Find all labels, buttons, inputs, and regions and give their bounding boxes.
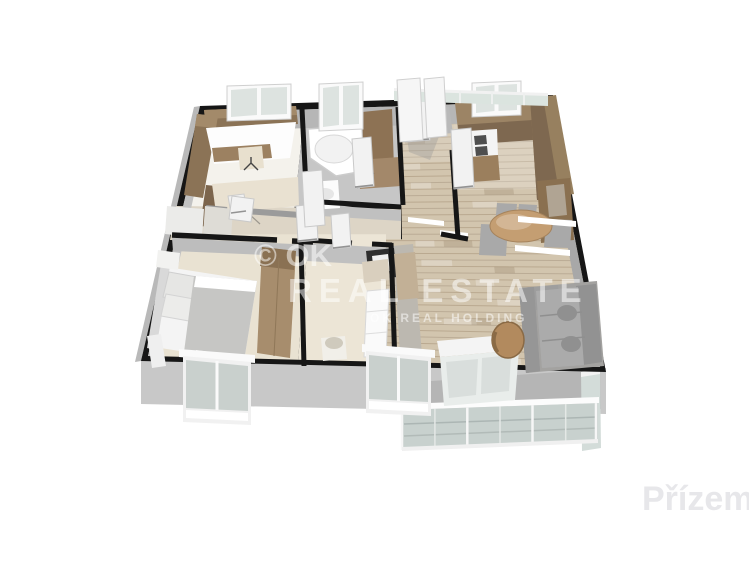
svg-text:© OK: © OK — [254, 238, 333, 273]
svg-text:Přízemí: Přízemí — [642, 480, 749, 518]
svg-text:OK REAL HOLDING: OK REAL HOLDING — [370, 311, 527, 325]
svg-text:REAL ESTATE: REAL ESTATE — [288, 272, 589, 309]
